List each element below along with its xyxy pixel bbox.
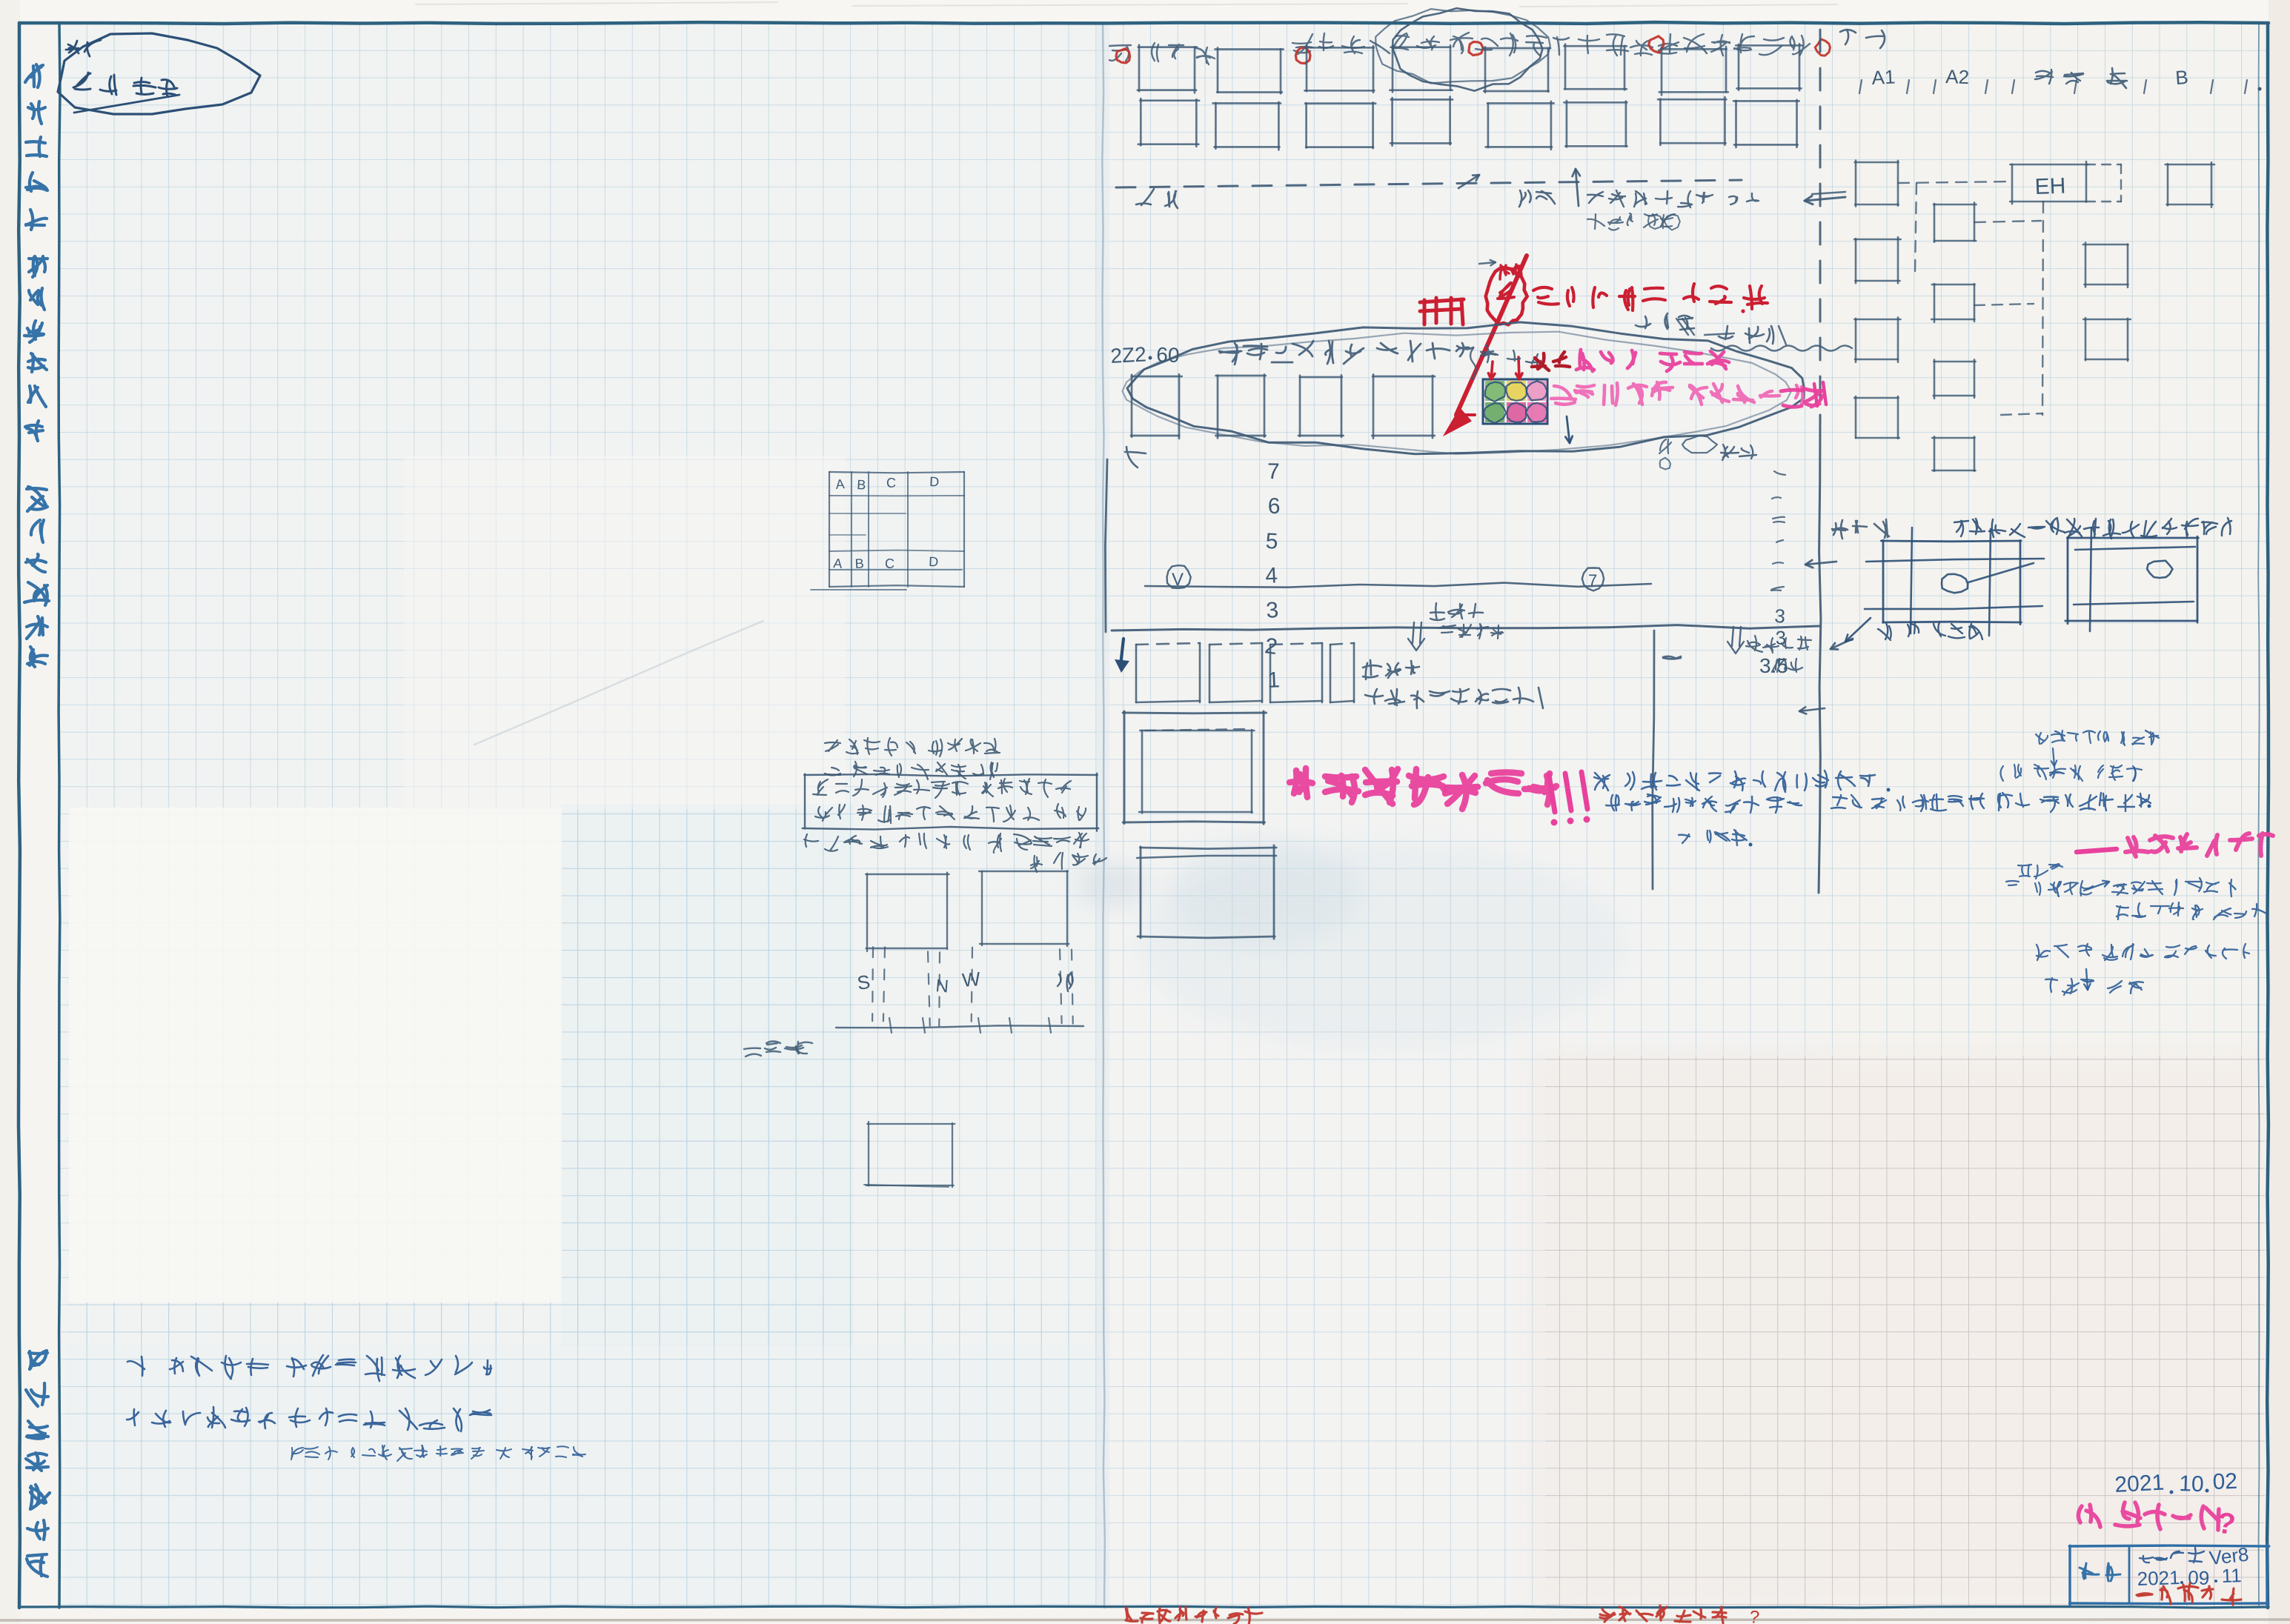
svg-text:3: 3 — [1774, 605, 1786, 628]
svg-text:N: N — [935, 976, 949, 996]
svg-text:A1: A1 — [1871, 65, 1896, 89]
svg-text:5: 5 — [1265, 529, 1278, 554]
svg-text:10: 10 — [2179, 1471, 2205, 1497]
svg-text:?: ? — [1748, 1607, 1760, 1624]
svg-text:EH: EH — [2034, 174, 2066, 199]
svg-text:7: 7 — [1267, 459, 1280, 484]
svg-text:B: B — [854, 556, 864, 571]
svg-text:02: 02 — [2212, 1469, 2238, 1494]
svg-text:C: C — [885, 556, 895, 571]
svg-text:A: A — [833, 556, 843, 571]
svg-text:3.5: 3.5 — [1759, 654, 1788, 677]
svg-text:6: 6 — [1268, 494, 1281, 519]
svg-text:60: 60 — [1156, 343, 1180, 367]
svg-text:2021: 2021 — [2114, 1471, 2165, 1497]
svg-text:1: 1 — [1267, 668, 1281, 693]
svg-text:2Z2: 2Z2 — [1110, 343, 1147, 367]
svg-text:D: D — [929, 474, 940, 489]
svg-text:11: 11 — [2221, 1564, 2242, 1587]
svg-text:B: B — [2174, 66, 2188, 89]
svg-text:4: 4 — [1265, 563, 1278, 588]
svg-text:2021: 2021 — [2137, 1566, 2180, 1590]
svg-text:3: 3 — [1265, 598, 1279, 623]
svg-text:A2: A2 — [1945, 65, 1970, 88]
svg-text:A: A — [835, 476, 845, 492]
svg-text:B: B — [857, 477, 866, 493]
svg-text:D: D — [929, 554, 939, 569]
svg-text:C: C — [886, 476, 896, 490]
